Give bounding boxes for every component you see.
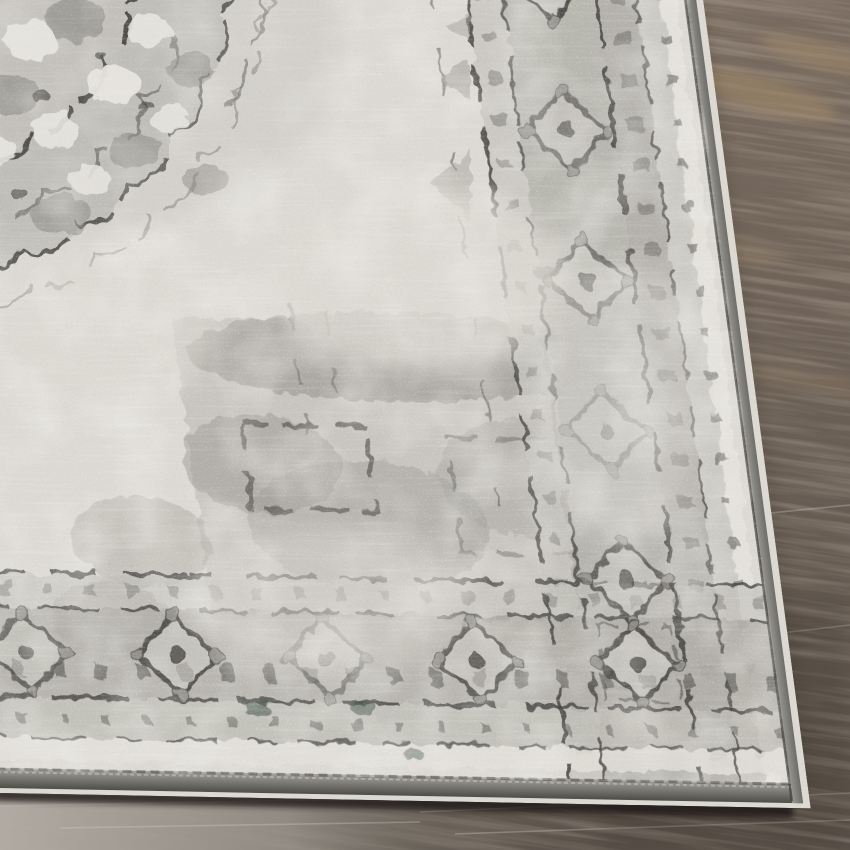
- rug-texture-overlays: [0, 0, 795, 790]
- scene-root: [0, 0, 850, 850]
- photo-canvas: [0, 0, 850, 850]
